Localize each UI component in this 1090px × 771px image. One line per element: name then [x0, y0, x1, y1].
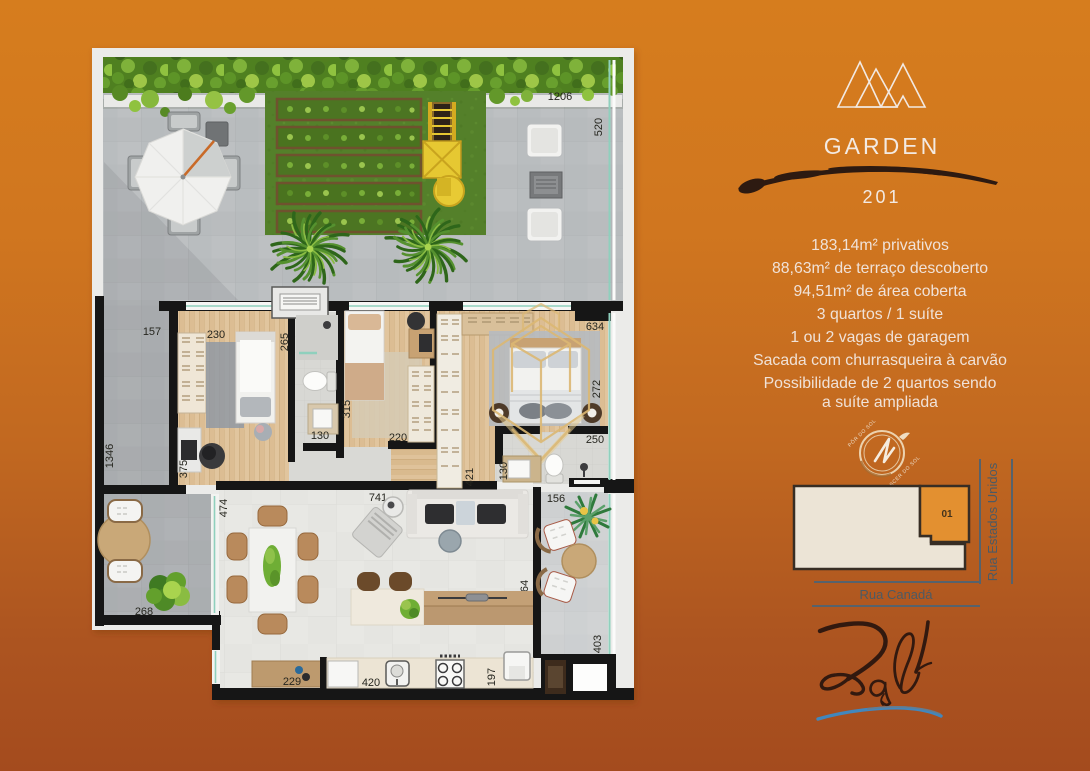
- svg-text:197: 197: [486, 668, 498, 686]
- svg-text:3 quartos / 1 suíte: 3 quartos / 1 suíte: [817, 306, 944, 323]
- svg-text:01: 01: [941, 509, 953, 520]
- svg-text:230: 230: [207, 329, 225, 341]
- svg-text:229: 229: [283, 676, 301, 688]
- svg-text:183,14m² privativos: 183,14m² privativos: [811, 237, 949, 254]
- svg-text:421: 421: [464, 468, 476, 486]
- svg-text:Rua Canadá: Rua Canadá: [860, 587, 934, 602]
- svg-text:88,63m² de terraço descoberto: 88,63m² de terraço descoberto: [772, 260, 988, 277]
- svg-text:1206: 1206: [548, 91, 572, 103]
- svg-text:520: 520: [593, 118, 605, 136]
- svg-text:375: 375: [178, 460, 190, 478]
- svg-text:265: 265: [279, 333, 291, 351]
- svg-text:156: 156: [547, 493, 565, 505]
- svg-text:a suíte ampliada: a suíte ampliada: [822, 394, 938, 411]
- svg-text:474: 474: [218, 499, 230, 517]
- svg-text:94,51m² de área coberta: 94,51m² de área coberta: [794, 283, 967, 300]
- svg-text:634: 634: [586, 321, 604, 333]
- svg-text:Possibilidade de 2 quartos sen: Possibilidade de 2 quartos sendo: [764, 375, 997, 392]
- svg-text:315: 315: [341, 400, 353, 418]
- svg-text:403: 403: [592, 635, 604, 653]
- svg-text:GARDEN: GARDEN: [824, 133, 940, 159]
- svg-text:220: 220: [389, 432, 407, 444]
- svg-text:250: 250: [586, 434, 604, 446]
- svg-text:1 ou 2 vagas de garagem: 1 ou 2 vagas de garagem: [790, 329, 969, 346]
- svg-text:Rua Estados Unidos: Rua Estados Unidos: [985, 462, 1000, 581]
- svg-text:201: 201: [862, 187, 901, 207]
- svg-text:130: 130: [498, 462, 510, 480]
- svg-text:130: 130: [311, 430, 329, 442]
- svg-text:268: 268: [135, 606, 153, 618]
- svg-text:272: 272: [591, 380, 603, 398]
- svg-text:Sacada com churrasqueira à car: Sacada com churrasqueira à carvão: [753, 352, 1007, 369]
- svg-text:420: 420: [362, 677, 380, 689]
- svg-text:157: 157: [143, 326, 161, 338]
- svg-text:1346: 1346: [104, 444, 116, 468]
